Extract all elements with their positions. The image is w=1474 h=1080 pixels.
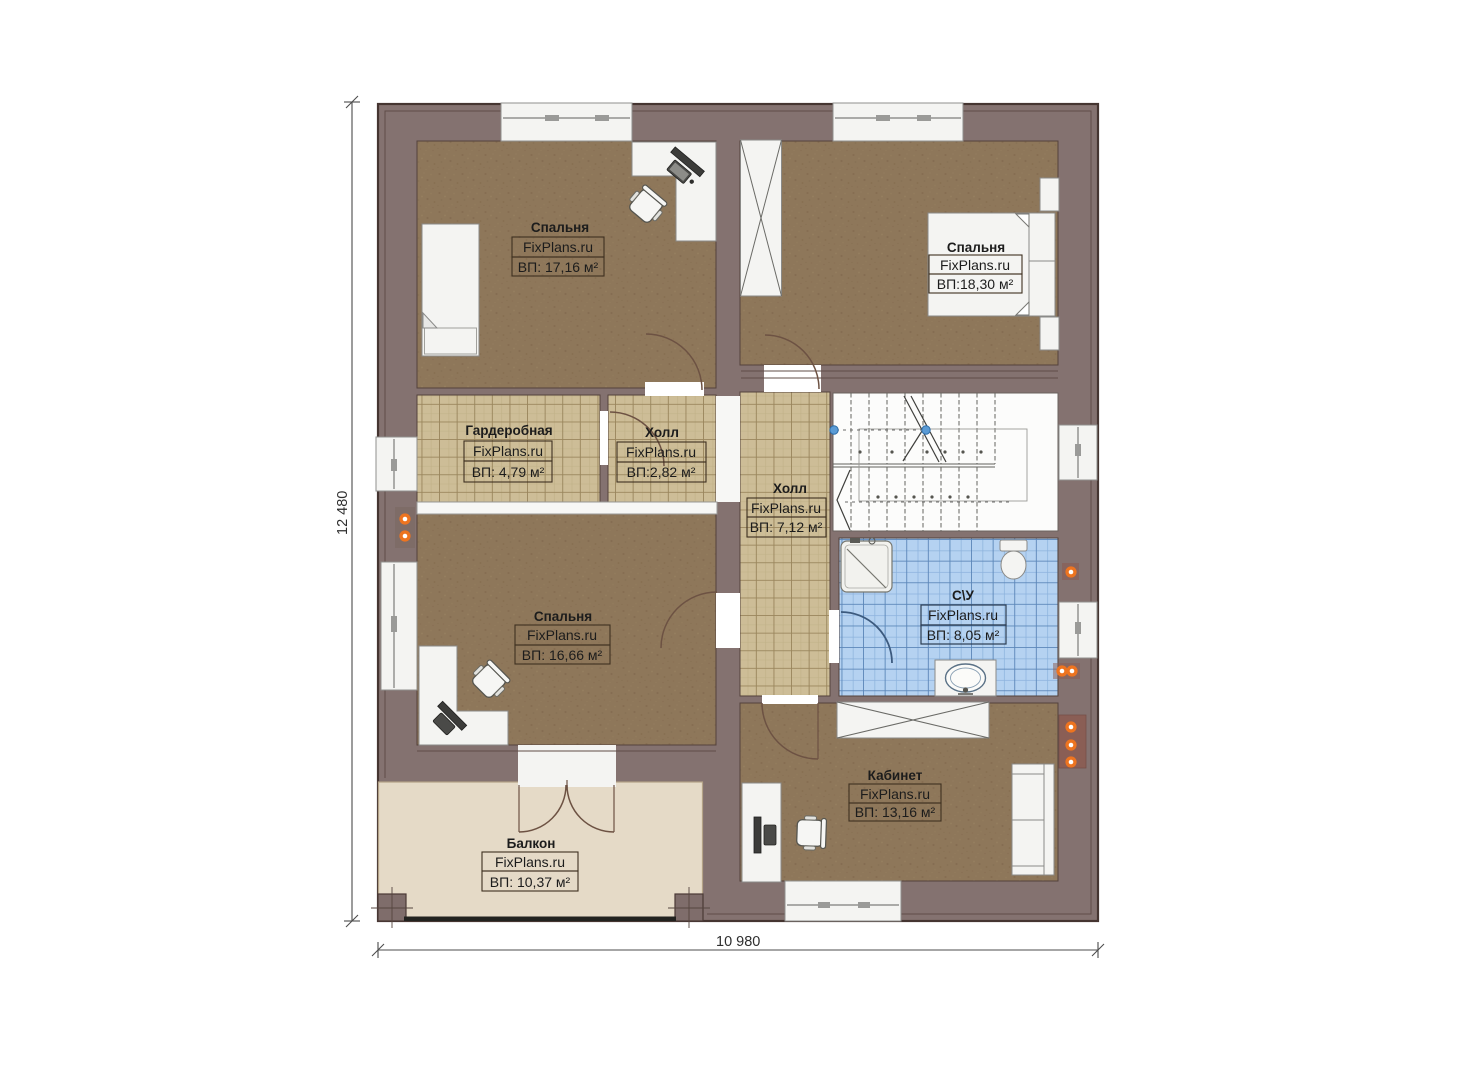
svg-text:FixPlans.ru: FixPlans.ru	[751, 500, 821, 516]
svg-text:ВП: 7,12 м²: ВП: 7,12 м²	[750, 519, 823, 535]
svg-text:FixPlans.ru: FixPlans.ru	[495, 854, 565, 870]
svg-text:FixPlans.ru: FixPlans.ru	[473, 443, 543, 459]
svg-text:ВП:18,30 м²: ВП:18,30 м²	[937, 276, 1014, 292]
svg-text:Холл: Холл	[773, 481, 807, 496]
svg-text:FixPlans.ru: FixPlans.ru	[527, 627, 597, 643]
svg-text:FixPlans.ru: FixPlans.ru	[860, 786, 930, 802]
svg-text:ВП:2,82 м²: ВП:2,82 м²	[627, 464, 696, 480]
svg-text:Спальня: Спальня	[531, 220, 589, 235]
svg-text:FixPlans.ru: FixPlans.ru	[626, 444, 696, 460]
svg-text:ВП: 17,16 м²: ВП: 17,16 м²	[518, 259, 599, 275]
svg-text:ВП: 16,66 м²: ВП: 16,66 м²	[522, 647, 603, 663]
svg-text:Спальня: Спальня	[534, 609, 592, 624]
svg-text:С\У: С\У	[952, 588, 975, 603]
svg-text:Балкон: Балкон	[507, 836, 556, 851]
svg-text:ВП: 8,05 м²: ВП: 8,05 м²	[927, 627, 1000, 643]
svg-text:ВП: 4,79 м²: ВП: 4,79 м²	[472, 464, 545, 480]
svg-text:ВП: 13,16 м²: ВП: 13,16 м²	[855, 804, 936, 820]
svg-text:Кабинет: Кабинет	[868, 768, 923, 783]
svg-text:10 980: 10 980	[716, 934, 760, 950]
svg-text:ВП: 10,37 м²: ВП: 10,37 м²	[490, 874, 571, 890]
svg-text:FixPlans.ru: FixPlans.ru	[940, 257, 1010, 273]
svg-text:Спальня: Спальня	[947, 240, 1005, 255]
svg-text:Гардеробная: Гардеробная	[465, 423, 552, 438]
svg-text:FixPlans.ru: FixPlans.ru	[523, 239, 593, 255]
svg-text:12 480: 12 480	[335, 491, 351, 535]
svg-text:FixPlans.ru: FixPlans.ru	[928, 607, 998, 623]
svg-text:Холл: Холл	[645, 425, 679, 440]
